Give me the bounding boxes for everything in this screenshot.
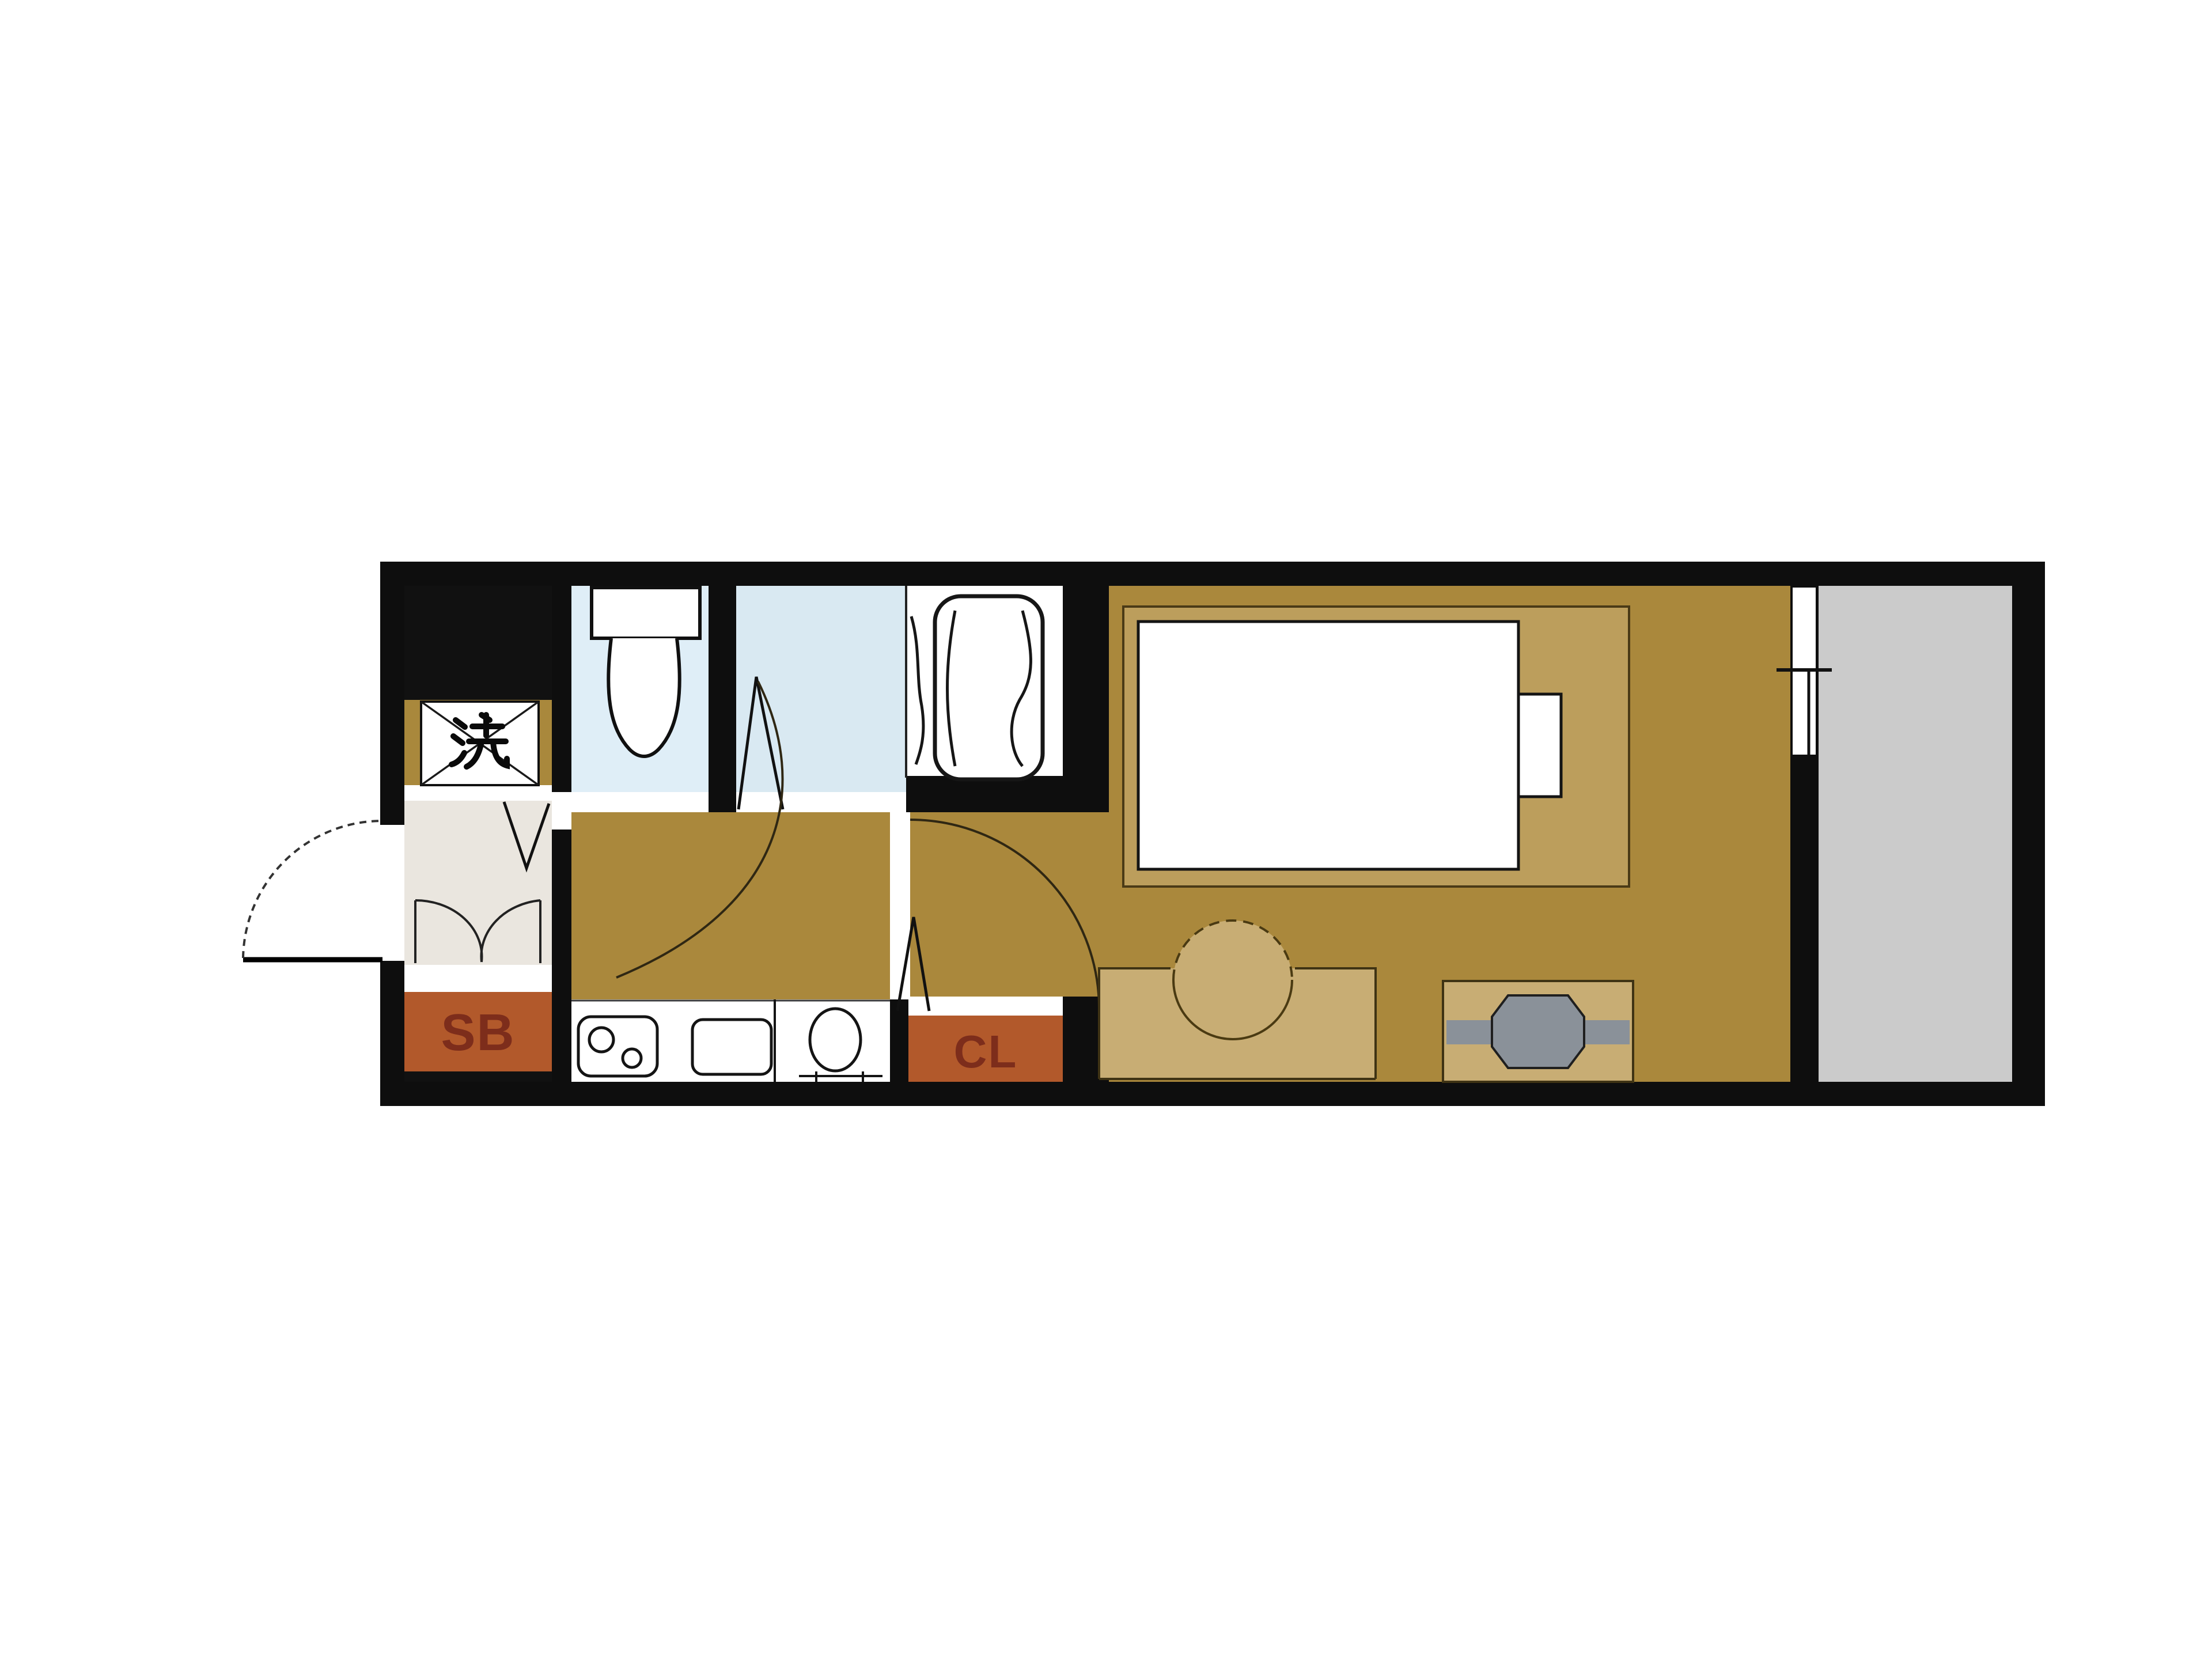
washing-machine-pan: [421, 702, 539, 785]
shoe-box-base: [404, 1071, 552, 1082]
stove-burner-small: [623, 1049, 641, 1067]
hallway-floor: [571, 812, 890, 999]
wall-kitchen-closet: [890, 999, 908, 1082]
entrance-door: [243, 821, 382, 960]
balcony-floor: [1819, 586, 2012, 1082]
floor-plan-page: SB CL: [0, 0, 2212, 1659]
outer-wall-left-lower: [380, 961, 404, 1106]
genkan-step: [404, 965, 552, 992]
tv-board-group: [1443, 981, 1633, 1082]
wall-genkan-toilet: [552, 586, 571, 792]
bathroom-door-threshold: [736, 792, 906, 812]
toilet-tank: [592, 588, 700, 638]
toilet-door-threshold: [571, 792, 709, 812]
bed-pillow: [1518, 694, 1561, 797]
wash-basin: [810, 1009, 861, 1071]
genkan-door-threshold: [552, 792, 571, 829]
wall-toilet-bathroom: [709, 586, 736, 812]
entrance-door-opening: [380, 825, 404, 961]
outer-wall-bottom: [380, 1082, 2045, 1106]
tv-icon: [1492, 995, 1584, 1068]
shoe-box-label: SB: [441, 1004, 515, 1062]
bed-mattress: [1138, 622, 1518, 869]
floor-plan: SB CL: [219, 562, 2045, 1106]
wall-genkan-hall: [552, 829, 571, 1082]
wall-bathroom-mainroom: [1063, 586, 1109, 812]
outer-wall-left-upper: [380, 562, 404, 825]
bed: [1123, 607, 1629, 887]
washer-threshold: [404, 785, 552, 801]
closet-label: CL: [954, 1026, 1018, 1077]
kitchen-sink: [692, 1020, 771, 1074]
main-door-threshold: [890, 812, 910, 999]
stove-burner-large: [589, 1028, 613, 1052]
entrance-door-arc: [243, 821, 382, 958]
outer-wall-right: [2012, 562, 2045, 1106]
door-zone-floor: [910, 812, 1109, 999]
pipe-space-void: [404, 586, 552, 700]
outer-wall-top: [380, 562, 2045, 586]
closet-front-strip: [908, 997, 1063, 1016]
